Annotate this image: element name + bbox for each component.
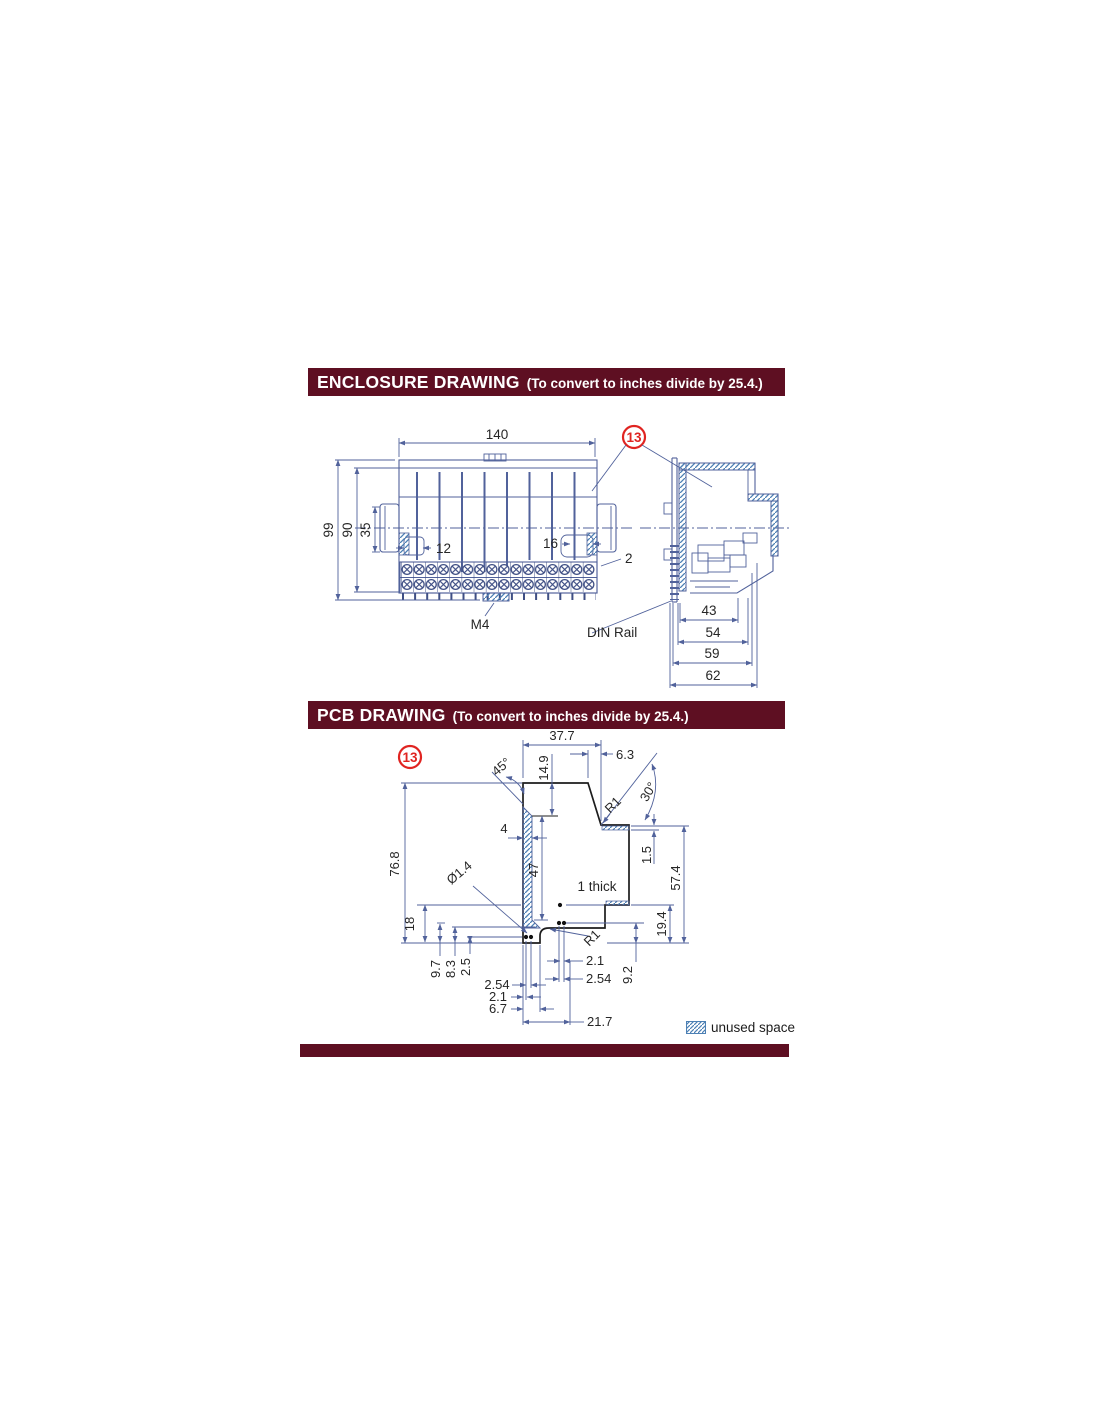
enclosure-drawing-canvas: M4 DIN Rail 140 99 90: [300, 413, 800, 698]
svg-text:2.54: 2.54: [586, 971, 611, 986]
svg-text:76.8: 76.8: [387, 851, 402, 876]
hatch-swatch-icon: [686, 1021, 706, 1034]
pcb-drawing-canvas: 13 1 thick 37.7: [300, 728, 800, 1028]
dim-62: 62: [670, 668, 757, 685]
svg-text:21.7: 21.7: [587, 1014, 612, 1028]
dim-140: 140: [399, 427, 595, 457]
dim-2: 2: [601, 551, 633, 566]
svg-text:9.2: 9.2: [620, 966, 635, 984]
enclosure-side-view: 43 54 59 62: [640, 458, 792, 688]
enclosure-section-subtitle: (To convert to inches divide by 25.4.): [527, 374, 763, 391]
svg-text:57.4: 57.4: [668, 865, 683, 890]
dim-r1-bottom: R1: [550, 927, 603, 949]
partition-slots: [417, 472, 575, 572]
svg-text:140: 140: [486, 427, 509, 442]
svg-text:99: 99: [321, 522, 336, 537]
svg-text:6.3: 6.3: [616, 747, 634, 762]
dim-21-7: 21.7: [523, 1014, 612, 1028]
svg-text:37.7: 37.7: [549, 728, 574, 743]
dim-hole-dia: Ø1.4: [443, 858, 527, 933]
dim-6-3: 6.3: [570, 747, 634, 778]
page-footer-rule: [300, 1044, 789, 1057]
dim-35: 35: [358, 507, 380, 552]
dim-59: 59: [673, 646, 752, 663]
pcb-dims: 37.7 6.3 14.9 45°: [387, 728, 689, 1028]
dim-43: 43: [680, 603, 738, 620]
dim-8-3: 8.3: [443, 927, 535, 978]
svg-text:2.1: 2.1: [586, 953, 604, 968]
unused-space-label: unused space: [711, 1020, 795, 1035]
svg-text:54: 54: [705, 625, 721, 640]
svg-text:43: 43: [701, 603, 716, 618]
svg-text:45°: 45°: [489, 754, 514, 778]
svg-text:R1: R1: [581, 927, 603, 949]
svg-text:6.7: 6.7: [489, 1001, 507, 1016]
svg-text:8.3: 8.3: [443, 960, 458, 978]
m4-label: M4: [471, 617, 490, 632]
unused-space-legend: unused space: [686, 1020, 795, 1035]
datasheet-page: ENCLOSURE DRAWING (To convert to inches …: [0, 0, 1100, 1422]
dim-45deg: 45°: [489, 754, 524, 804]
dim-18: 18: [402, 905, 604, 942]
callout-13-pcb: 13: [399, 746, 421, 768]
svg-text:90: 90: [340, 522, 355, 537]
terminal-block: [400, 562, 597, 597]
dim-6-7: 6.7: [489, 1001, 554, 1016]
terminal-mechanism: [690, 533, 757, 587]
enclosure-section-header: ENCLOSURE DRAWING (To convert to inches …: [308, 368, 785, 396]
unused-space-hatch-left: [399, 533, 409, 555]
svg-text:9.7: 9.7: [428, 960, 443, 978]
svg-text:Ø1.4: Ø1.4: [443, 858, 474, 888]
dim-r1-top: R1: [602, 794, 624, 823]
thickness-label: 1 thick: [577, 879, 616, 894]
enclosure-section-title: ENCLOSURE DRAWING: [317, 372, 520, 393]
svg-text:1.5: 1.5: [639, 846, 654, 864]
enclosure-front-view: M4 DIN Rail 140 99 90: [321, 426, 712, 640]
dim-37-7: 37.7: [523, 728, 601, 821]
dim-1-5: 1.5: [631, 814, 659, 864]
svg-text:2.5: 2.5: [458, 958, 473, 976]
dim-57-4: 57.4: [607, 826, 689, 943]
pcb-section-title: PCB DRAWING: [317, 705, 446, 726]
svg-text:14.9: 14.9: [536, 755, 551, 780]
m4-mount-tab: [483, 593, 509, 601]
svg-text:59: 59: [704, 646, 719, 661]
dim-2-54-right: 2.54: [545, 971, 611, 986]
unused-space-step: [602, 826, 629, 830]
dim-2-1-right: 2.1: [547, 953, 604, 968]
svg-text:19.4: 19.4: [654, 911, 669, 936]
svg-text:12: 12: [436, 541, 451, 556]
svg-text:47: 47: [526, 863, 541, 877]
dim-14-9: 14.9: [536, 754, 552, 815]
dim-54: 54: [678, 625, 748, 642]
din-rail: [664, 458, 677, 602]
dim-19-4: 19.4: [631, 905, 674, 943]
svg-text:2: 2: [625, 551, 633, 566]
unused-space-bottom: [606, 901, 629, 905]
svg-text:13: 13: [626, 430, 642, 445]
svg-text:35: 35: [358, 522, 373, 537]
callout-13-enclosure: 13: [592, 426, 712, 491]
pcb-section-header: PCB DRAWING (To convert to inches divide…: [308, 701, 785, 729]
svg-text:R1: R1: [602, 794, 624, 816]
svg-text:13: 13: [402, 750, 418, 765]
pcb-section-subtitle: (To convert to inches divide by 25.4.): [453, 707, 689, 724]
svg-text:18: 18: [402, 917, 417, 931]
din-rail-label: DIN Rail: [587, 625, 637, 640]
svg-text:4: 4: [500, 821, 507, 836]
svg-text:16: 16: [543, 536, 558, 551]
svg-text:62: 62: [705, 668, 720, 683]
